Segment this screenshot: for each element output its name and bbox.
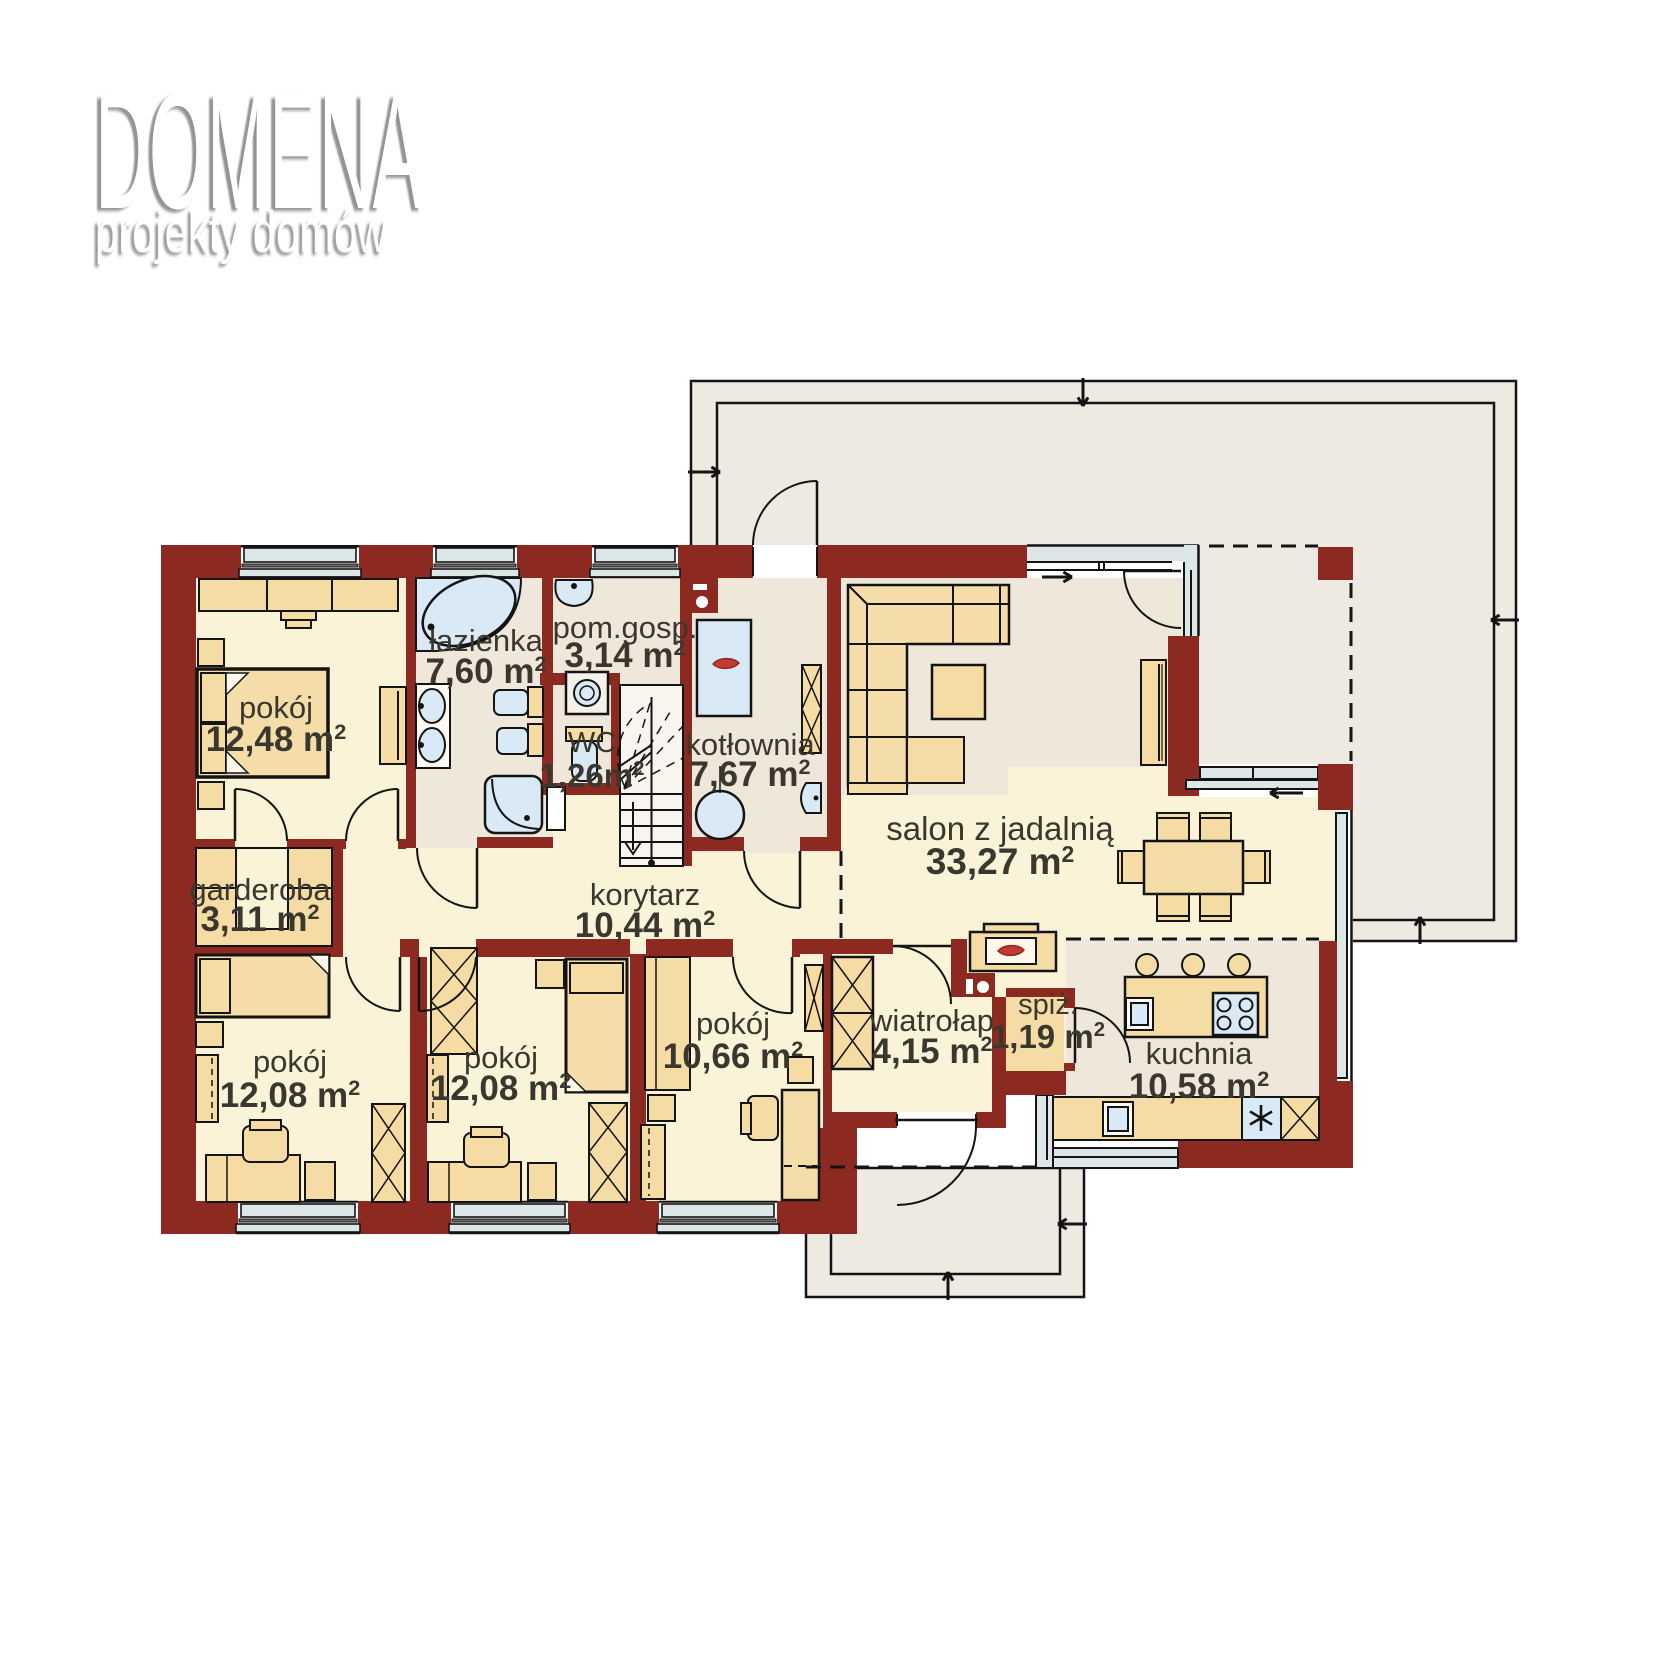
svg-text:3,14 m2: 3,14 m2 bbox=[564, 635, 685, 675]
svg-text:projekty domów: projekty domów bbox=[95, 199, 388, 264]
svg-text:10,44 m2: 10,44 m2 bbox=[575, 905, 716, 945]
svg-text:pokój: pokój bbox=[696, 1006, 770, 1041]
svg-text:spiż.: spiż. bbox=[1018, 989, 1078, 1021]
svg-text:12,08 m2: 12,08 m2 bbox=[220, 1075, 361, 1115]
svg-text:12,08 m2: 12,08 m2 bbox=[431, 1068, 572, 1108]
svg-text:pokój: pokój bbox=[253, 1044, 327, 1079]
svg-text:kuchnia: kuchnia bbox=[1146, 1036, 1254, 1071]
svg-text:33,27 m2: 33,27 m2 bbox=[926, 841, 1075, 882]
svg-text:3,11 m2: 3,11 m2 bbox=[200, 899, 319, 939]
svg-text:7,67 m2: 7,67 m2 bbox=[689, 754, 810, 794]
svg-text:WC: WC bbox=[568, 727, 616, 759]
svg-text:12,48 m2: 12,48 m2 bbox=[206, 719, 347, 759]
svg-text:10,66 m2: 10,66 m2 bbox=[663, 1036, 804, 1076]
svg-text:4,15 m2: 4,15 m2 bbox=[871, 1031, 992, 1071]
svg-text:7,60 m2: 7,60 m2 bbox=[425, 651, 546, 691]
svg-text:1,26m2: 1,26m2 bbox=[540, 757, 645, 794]
svg-text:1,19 m2: 1,19 m2 bbox=[991, 1018, 1105, 1055]
svg-text:10,58 m2: 10,58 m2 bbox=[1129, 1066, 1270, 1106]
